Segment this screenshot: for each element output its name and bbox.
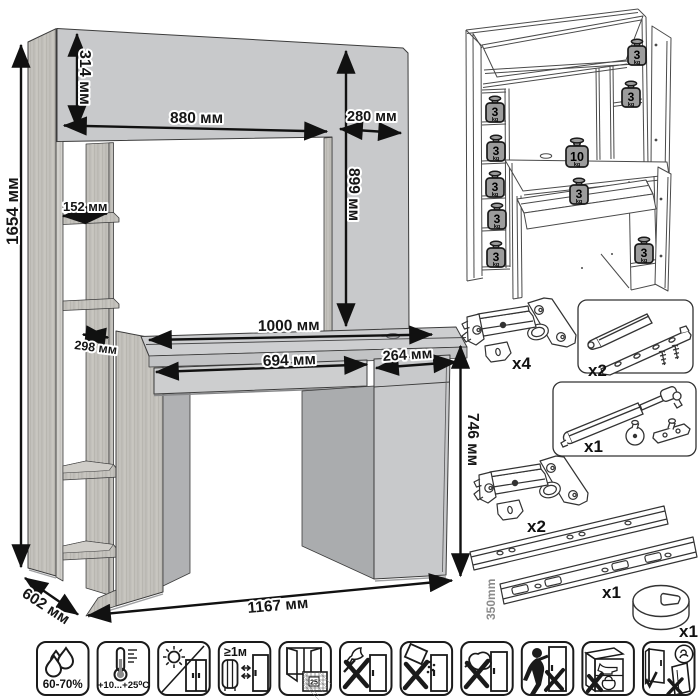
svg-text:x4: x4 [512, 354, 531, 373]
svg-text:x1: x1 [584, 437, 603, 456]
svg-text:25: 25 [310, 680, 318, 687]
svg-text:746 мм: 746 мм [464, 413, 481, 466]
svg-text:+10...+25⁰С: +10...+25⁰С [98, 680, 149, 691]
svg-text:152 мм: 152 мм [63, 199, 108, 214]
svg-text:x1: x1 [679, 622, 698, 641]
svg-text:899 мм: 899 мм [345, 168, 362, 221]
svg-text:1000 мм: 1000 мм [258, 317, 320, 335]
svg-text:694 мм: 694 мм [263, 351, 317, 370]
svg-text:1654 мм: 1654 мм [3, 177, 22, 245]
svg-text:280 мм: 280 мм [347, 109, 397, 125]
svg-text:1167 мм: 1167 мм [247, 595, 309, 617]
svg-text:x1: x1 [602, 583, 621, 602]
svg-text:314 мм: 314 мм [76, 50, 93, 105]
svg-text:60-70%: 60-70% [43, 678, 83, 691]
svg-text:≥1м: ≥1м [224, 645, 247, 659]
svg-text:880 мм: 880 мм [170, 110, 223, 127]
svg-text:264 мм: 264 мм [382, 346, 433, 365]
svg-text:x2: x2 [588, 361, 607, 380]
svg-text:x2: x2 [527, 517, 546, 536]
svg-text:350mm: 350mm [484, 579, 498, 620]
